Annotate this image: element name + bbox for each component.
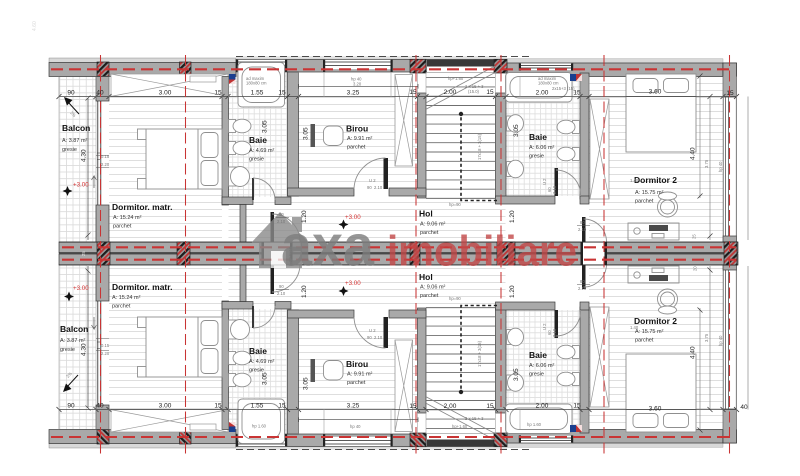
svg-text:hp+1.60: hp+1.60 (448, 76, 464, 81)
svg-text:2x15+3 (15): 2x15+3 (15) (552, 86, 575, 91)
svg-text:2.10: 2.10 (578, 227, 587, 232)
svg-text:1.20: 1.20 (509, 285, 516, 298)
svg-text:gresie: gresie (529, 154, 544, 160)
svg-text:1.40: 1.40 (630, 178, 639, 183)
svg-text:2 x 15 + 3: 2 x 15 + 3 (465, 416, 484, 421)
svg-text:2.10: 2.10 (552, 328, 557, 337)
svg-text:15: 15 (214, 403, 222, 410)
svg-text:Birou: Birou (346, 124, 368, 134)
svg-text:A: 15.75 m²: A: 15.75 m² (635, 190, 664, 196)
svg-text:2.00: 2.00 (444, 89, 457, 96)
svg-text:80: 80 (580, 279, 585, 284)
svg-text:90: 90 (67, 403, 75, 410)
svg-text:3.05: 3.05 (262, 372, 269, 385)
svg-text:3.05: 3.05 (303, 377, 310, 390)
svg-text:2.10: 2.10 (578, 286, 587, 291)
svg-text:1.20: 1.20 (509, 210, 516, 223)
svg-text:(15.0): (15.0) (468, 89, 480, 94)
svg-text:3.60: 3.60 (649, 89, 662, 96)
svg-text:15: 15 (278, 90, 286, 97)
svg-text:80: 80 (580, 220, 585, 225)
svg-text:4.40: 4.40 (690, 346, 697, 359)
svg-text:2.10: 2.10 (277, 291, 286, 296)
svg-text:3.75: 3.75 (704, 159, 709, 168)
svg-text:0.15: 0.15 (101, 154, 110, 159)
svg-text:A: 4.69 m²: A: 4.69 m² (249, 148, 275, 154)
svg-text:hp 1.60: hp 1.60 (252, 424, 267, 429)
svg-text:3.00: 3.00 (159, 403, 172, 410)
svg-text:+3.00: +3.00 (73, 285, 89, 292)
svg-text:1.20: 1.20 (301, 210, 308, 223)
svg-text:4.40: 4.40 (690, 147, 697, 160)
svg-text:90: 90 (367, 335, 372, 340)
svg-text:2.00: 2.00 (536, 403, 549, 410)
svg-text:90: 90 (367, 185, 372, 190)
svg-text:Dormitor 2: Dormitor 2 (634, 175, 677, 185)
svg-text:15: 15 (214, 90, 222, 97)
svg-text:parchet: parchet (635, 199, 654, 205)
svg-text:hp 40: hp 40 (718, 335, 723, 346)
svg-text:2.10: 2.10 (277, 219, 286, 224)
svg-text:Hol: Hol (419, 272, 433, 282)
svg-text:A: 9.91 m²: A: 9.91 m² (347, 136, 373, 142)
svg-text:axa: axa (281, 214, 375, 279)
svg-text:Baie: Baie (529, 132, 547, 142)
svg-text:2.10: 2.10 (374, 335, 383, 340)
svg-text:A: 6.06 m²: A: 6.06 m² (529, 145, 555, 151)
svg-text:40: 40 (740, 404, 748, 411)
svg-text:A: 3.87 m²: A: 3.87 m² (62, 138, 88, 144)
svg-text:Balcon: Balcon (60, 324, 88, 334)
svg-text:40: 40 (96, 403, 104, 410)
svg-text:3.05: 3.05 (513, 368, 520, 381)
svg-text:15: 15 (726, 90, 734, 97)
svg-text:Baie: Baie (529, 350, 547, 360)
svg-text:hp=90: hp=90 (449, 202, 461, 207)
svg-text:15: 15 (573, 90, 581, 97)
svg-text:+3.00: +3.00 (345, 280, 361, 287)
svg-text:gresie: gresie (529, 372, 544, 378)
svg-text:hp 1.60: hp 1.60 (527, 422, 542, 427)
svg-text:hp+1.60: hp+1.60 (452, 424, 468, 429)
svg-text:17x18 + 3(15): 17x18 + 3(15) (477, 340, 482, 367)
svg-text:1.55: 1.55 (251, 403, 264, 410)
svg-text:hp 40: hp 40 (718, 161, 723, 172)
svg-text:3.05: 3.05 (262, 120, 269, 133)
svg-text:Dormitor 2: Dormitor 2 (634, 316, 677, 326)
svg-text:3.05: 3.05 (513, 124, 520, 137)
svg-text:90: 90 (279, 284, 284, 289)
svg-text:parchet: parchet (347, 145, 366, 151)
svg-text:4.30: 4.30 (81, 149, 88, 162)
svg-text:parchet: parchet (420, 293, 439, 299)
svg-text:3.60: 3.60 (649, 406, 662, 413)
svg-text:A: 9.06 m²: A: 9.06 m² (420, 285, 446, 291)
svg-text:180x80 cm: 180x80 cm (246, 81, 267, 86)
svg-text:0.15: 0.15 (101, 343, 110, 348)
svg-text:gresie: gresie (62, 147, 77, 153)
svg-text:2.20: 2.20 (101, 351, 110, 356)
svg-text:parchet: parchet (635, 338, 654, 344)
svg-text:90: 90 (279, 212, 284, 217)
svg-text:3.20: 3.20 (353, 82, 362, 87)
svg-text:+3.00: +3.00 (73, 182, 89, 189)
svg-text:4.30: 4.30 (81, 343, 88, 356)
svg-text:Baie: Baie (249, 346, 267, 356)
svg-text:A: 9.91 m²: A: 9.91 m² (347, 372, 373, 378)
svg-text:Dormitor. matr.: Dormitor. matr. (112, 282, 172, 292)
svg-text:15: 15 (573, 403, 581, 410)
svg-text:Birou: Birou (346, 359, 368, 369)
svg-text:2.20: 2.20 (101, 162, 110, 167)
svg-text:15: 15 (278, 403, 286, 410)
svg-text:2.10: 2.10 (552, 185, 557, 194)
svg-text:17x18 + 3(15): 17x18 + 3(15) (477, 133, 482, 160)
svg-text:A: 9.06 m²: A: 9.06 m² (420, 222, 446, 228)
svg-text:1.55: 1.55 (251, 90, 264, 97)
svg-text:Baie: Baie (249, 135, 267, 145)
svg-text:15: 15 (486, 403, 494, 410)
svg-text:parchet: parchet (112, 304, 131, 310)
svg-text:imobiliare: imobiliare (387, 228, 577, 276)
svg-text:15: 15 (409, 403, 417, 410)
svg-text:25: 25 (692, 234, 697, 239)
svg-text:22,5x18: 22,5x18 (288, 246, 293, 262)
svg-text:Dormitor. matr.: Dormitor. matr. (112, 202, 172, 212)
svg-text:180x80 cm: 180x80 cm (538, 81, 559, 86)
svg-text:U 2: U 2 (369, 328, 376, 333)
svg-text:2.00: 2.00 (536, 90, 549, 97)
svg-text:A: 4.69 m²: A: 4.69 m² (249, 359, 275, 365)
svg-text:3.05: 3.05 (303, 127, 310, 140)
svg-text:parchet: parchet (347, 380, 366, 386)
svg-text:15: 15 (409, 89, 417, 96)
svg-text:parchet: parchet (420, 230, 439, 236)
svg-text:Balcon: Balcon (62, 123, 90, 133)
svg-text:gresie: gresie (249, 157, 264, 163)
svg-text:15: 15 (486, 89, 494, 96)
svg-text:A: 6.06 m²: A: 6.06 m² (529, 363, 555, 369)
svg-text:U 2: U 2 (542, 178, 547, 185)
svg-text:gresie: gresie (60, 347, 75, 353)
svg-text:4.60: 4.60 (32, 21, 38, 31)
svg-text:parchet: parchet (113, 224, 132, 230)
svg-text:Hol: Hol (419, 209, 433, 219)
svg-text:3.25: 3.25 (347, 403, 360, 410)
svg-text:3.75: 3.75 (704, 333, 709, 342)
svg-text:+3.00: +3.00 (345, 214, 361, 221)
svg-text:1.20: 1.20 (301, 285, 308, 298)
svg-text:3.00: 3.00 (159, 90, 172, 97)
svg-text:A: 3.87 m²: A: 3.87 m² (60, 338, 86, 344)
svg-text:1.40: 1.40 (630, 325, 639, 330)
svg-text:U 2: U 2 (369, 178, 376, 183)
svg-text:2.00: 2.00 (444, 403, 457, 410)
svg-text:90: 90 (67, 90, 75, 97)
svg-text:A: 15.75 m²: A: 15.75 m² (635, 329, 664, 335)
svg-text:hp 40: hp 40 (350, 424, 361, 429)
svg-text:A: 15.24 m²: A: 15.24 m² (113, 215, 142, 221)
svg-text:40: 40 (96, 90, 104, 97)
svg-text:U 2: U 2 (542, 323, 547, 330)
svg-text:hp=90: hp=90 (449, 296, 461, 301)
svg-text:25: 25 (81, 251, 86, 256)
svg-text:2.10: 2.10 (374, 185, 383, 190)
svg-text:20: 20 (693, 266, 698, 271)
svg-text:3.25: 3.25 (347, 90, 360, 97)
svg-text:A: 15.24 m²: A: 15.24 m² (112, 295, 141, 301)
